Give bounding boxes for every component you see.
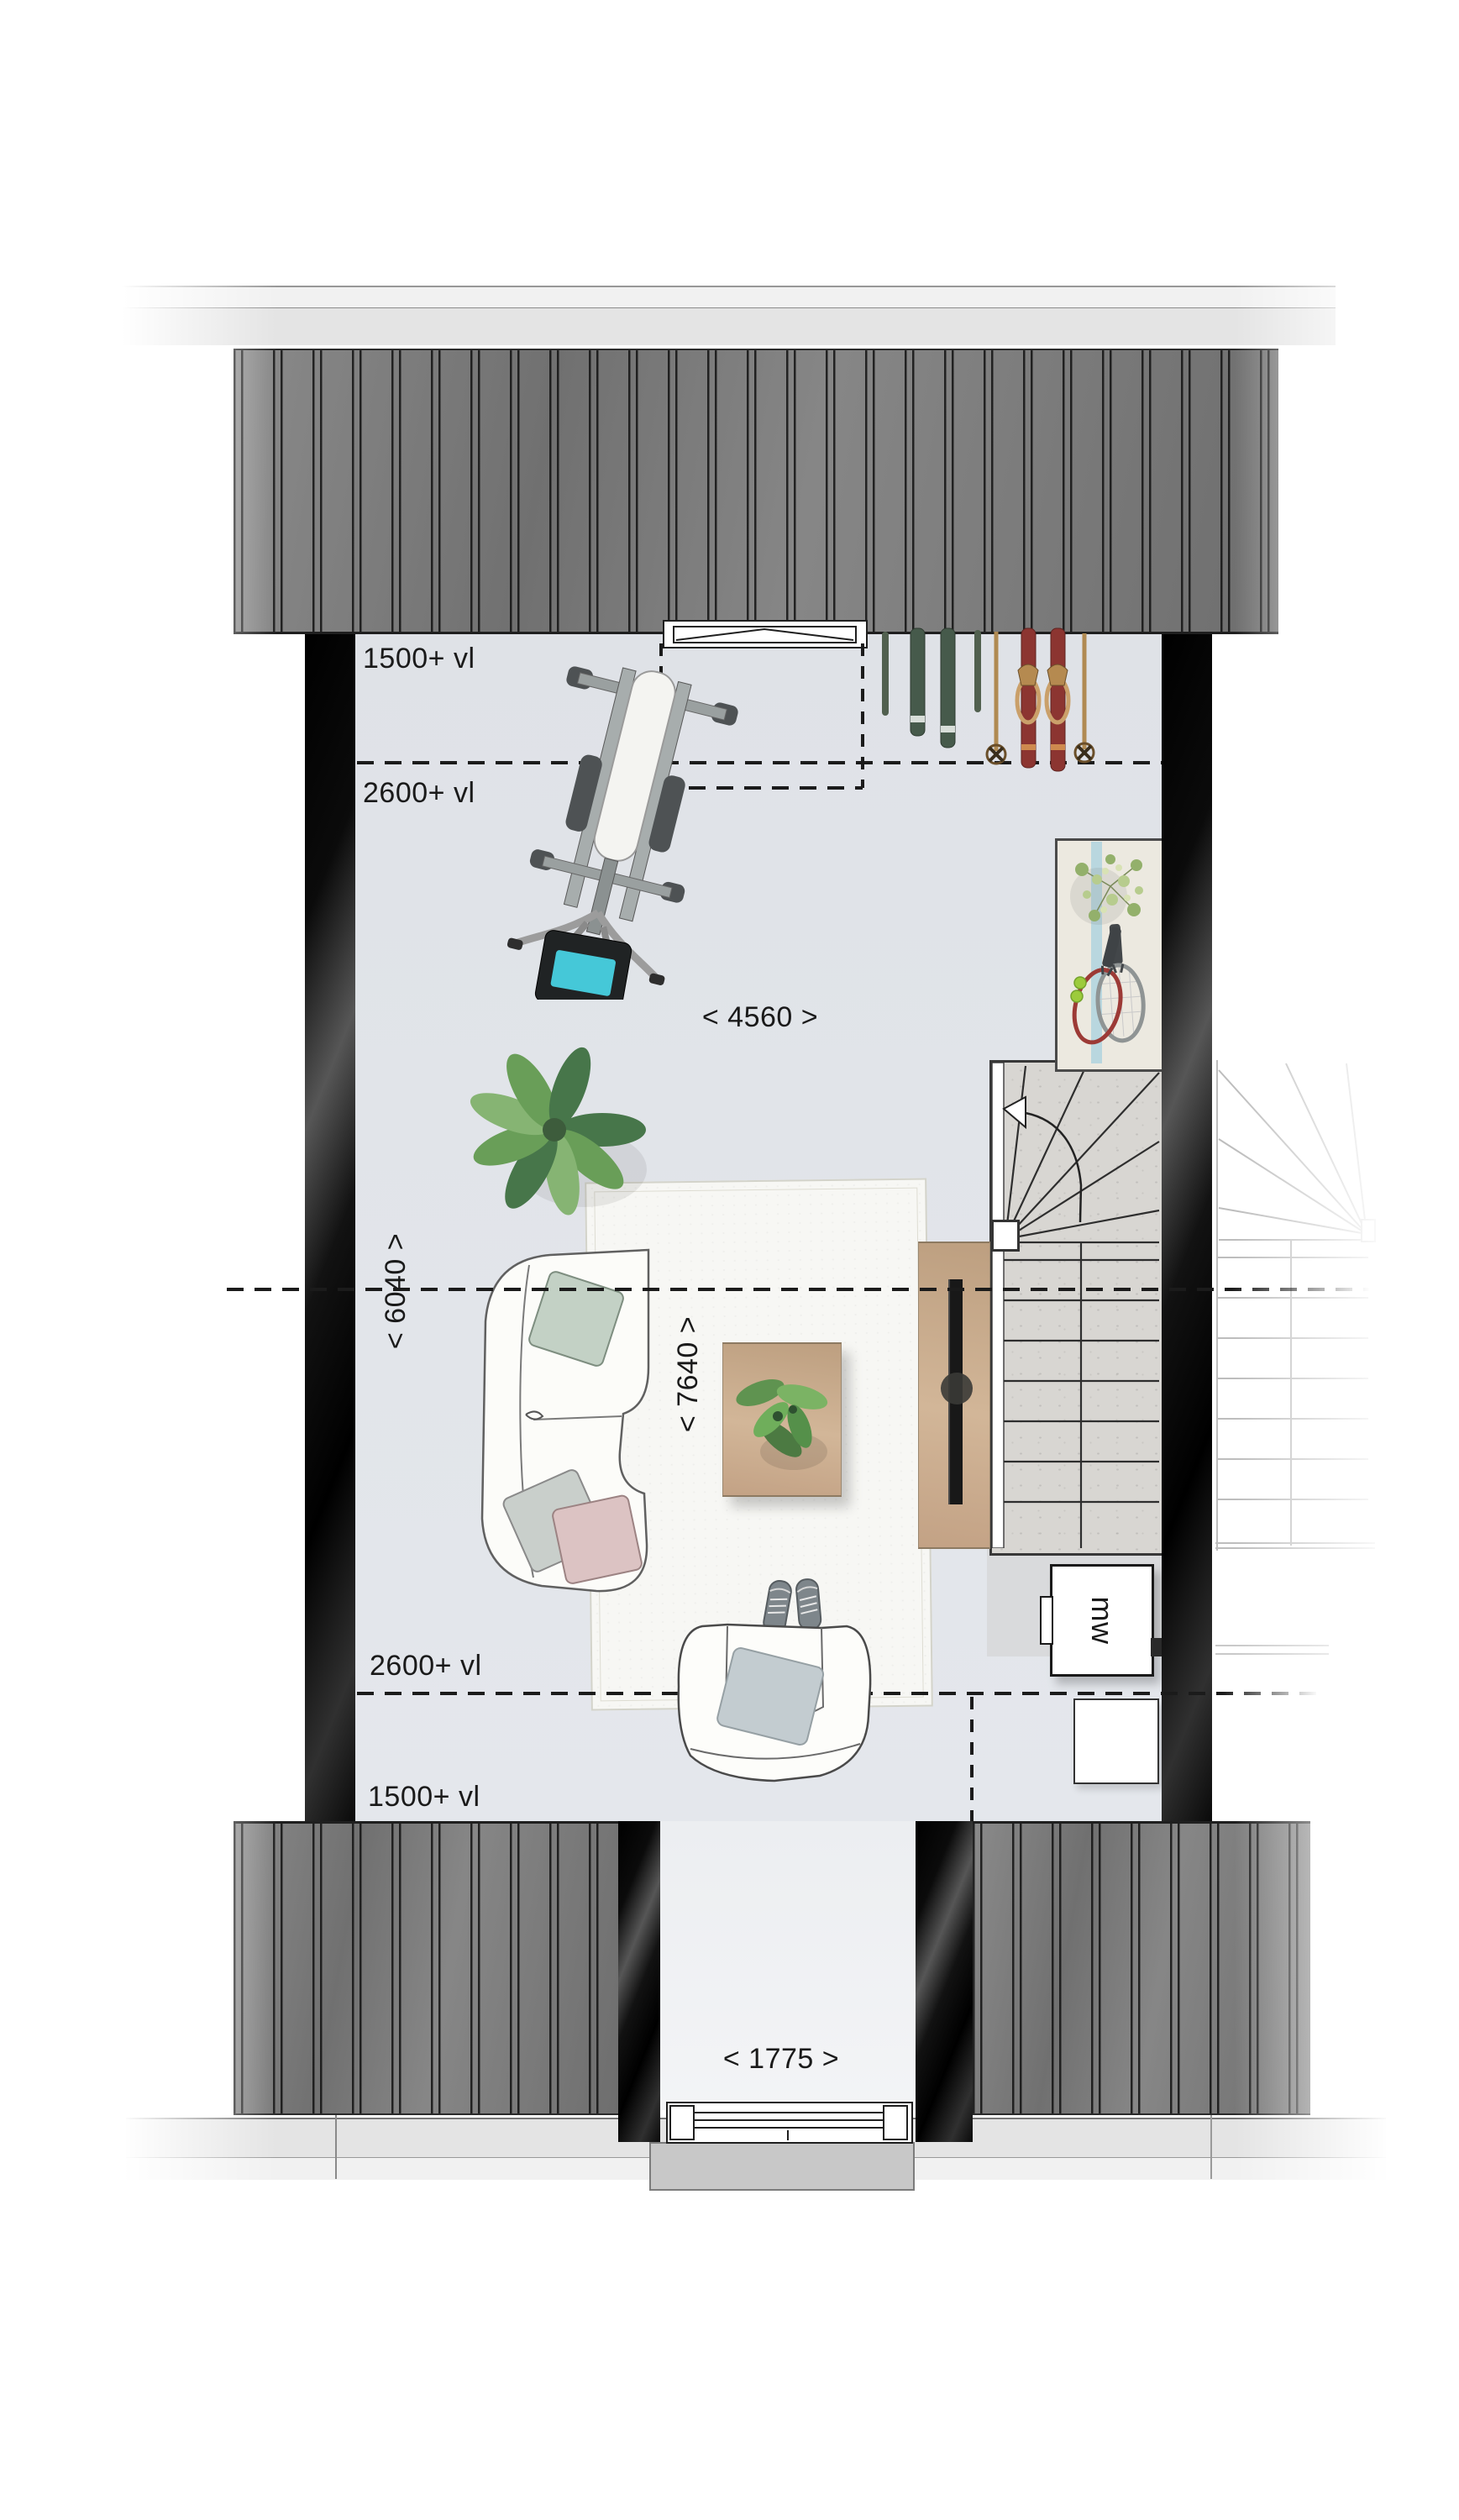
balcony-slab — [649, 2142, 915, 2191]
roof-bottom-right — [973, 1821, 1310, 2115]
armchair — [665, 1606, 884, 1789]
dim-label-6040: < 6040 > — [380, 1199, 413, 1383]
large-plant — [458, 1033, 651, 1226]
staircase-treads — [992, 1063, 1162, 1548]
coffee-table-plant — [722, 1342, 840, 1494]
sofa-pillow-pink — [552, 1494, 643, 1584]
door-post-icon — [669, 2105, 695, 2140]
storage-box — [1073, 1698, 1159, 1784]
dim-label-1775: < 1775 > — [706, 2043, 857, 2076]
stair-newel-post — [991, 1220, 1020, 1252]
dim-label-4560: < 4560 > — [685, 1001, 836, 1034]
lower-dormer-outline-right — [970, 1697, 974, 1821]
zone-label-1500-bottom: 1500+ vl — [368, 1781, 480, 1814]
dormer-window-glass — [673, 626, 857, 643]
window-swing-symbol — [674, 627, 855, 642]
zone-label-2600-bottom: 2600+ vl — [370, 1650, 482, 1683]
zone-label-2600-top: 2600+ vl — [363, 777, 475, 810]
zone-label-1500-top: 1500+ vl — [363, 643, 475, 675]
sofa — [470, 1242, 655, 1611]
tennis-ball-icon — [1071, 990, 1083, 1002]
dormer-outline-right — [861, 643, 864, 788]
facade-joint-line-right — [1210, 2115, 1212, 2179]
mw-wall-tab — [1040, 1596, 1053, 1645]
neighbour-floor-line — [1215, 1645, 1329, 1655]
left-party-wall — [305, 634, 355, 1821]
floorplan-canvas: mw — [0, 0, 1459, 2520]
door-post-icon — [883, 2105, 908, 2140]
top-facade-band-outer — [118, 286, 1336, 309]
corridor-wall-left — [618, 1821, 660, 2142]
green-pole-icon — [882, 632, 889, 716]
green-pole-icon — [974, 630, 981, 712]
ski-set — [874, 627, 1100, 786]
staircase — [989, 1060, 1169, 1556]
top-facade-band-inner — [118, 307, 1336, 345]
corridor-wall-right — [916, 1821, 973, 2142]
roof-top — [234, 349, 1278, 634]
tennis-rackets — [1067, 924, 1161, 1063]
mw-appliance: mw — [1050, 1564, 1154, 1677]
neighbour-staircase — [1215, 1060, 1380, 1551]
right-party-wall — [1162, 634, 1212, 1821]
mw-label: mw — [1084, 1597, 1120, 1645]
exercise-machine — [487, 664, 756, 1000]
dim-label-7640: < 7640 > — [672, 1282, 706, 1467]
entrance-door — [666, 2102, 913, 2144]
facade-joint-line-left — [335, 2115, 337, 2179]
dormer-window-frame — [663, 620, 868, 648]
tennis-ball-icon — [1074, 977, 1086, 989]
roof-bottom-left — [234, 1821, 620, 2115]
stair-direction-arrow-icon — [1004, 1097, 1026, 1127]
speaker-icon — [941, 1373, 973, 1404]
